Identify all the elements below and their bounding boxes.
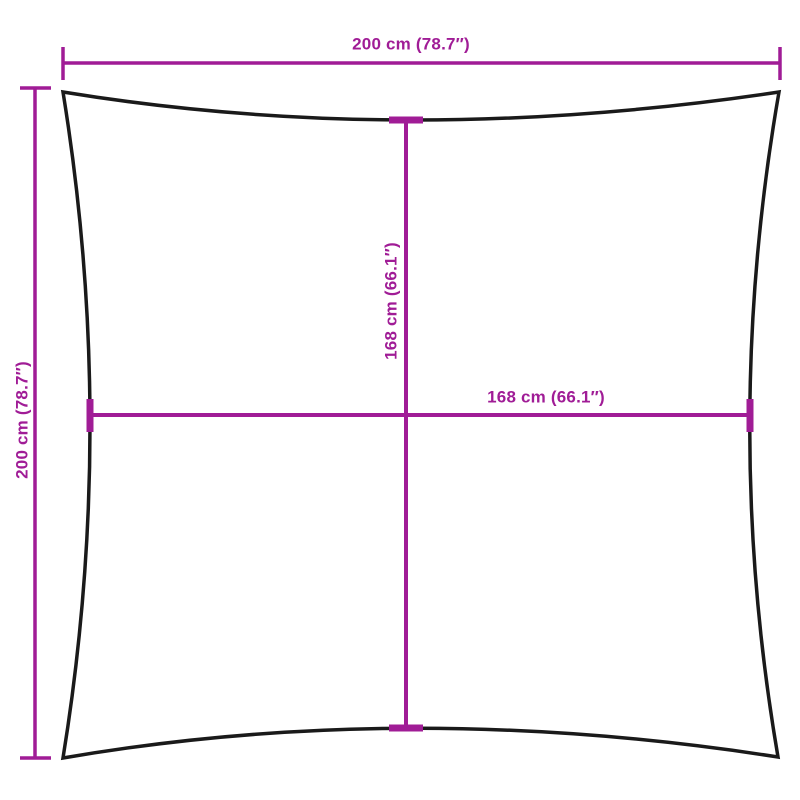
- diagram-canvas: [0, 0, 800, 800]
- outer-width-label: 200 cm (78.7″): [352, 36, 470, 53]
- outer-height-label: 200 cm (78.7″): [14, 361, 31, 479]
- inner-height-label: 168 cm (66.1″): [383, 242, 400, 360]
- shade-sail-outline: [63, 92, 779, 758]
- inner-height-dimension: [389, 120, 423, 728]
- inner-width-dimension: [90, 399, 750, 432]
- inner-width-label: 168 cm (66.1″): [487, 389, 605, 406]
- product-dimension-diagram: 200 cm (78.7″) 200 cm (78.7″) 168 cm (66…: [0, 0, 800, 800]
